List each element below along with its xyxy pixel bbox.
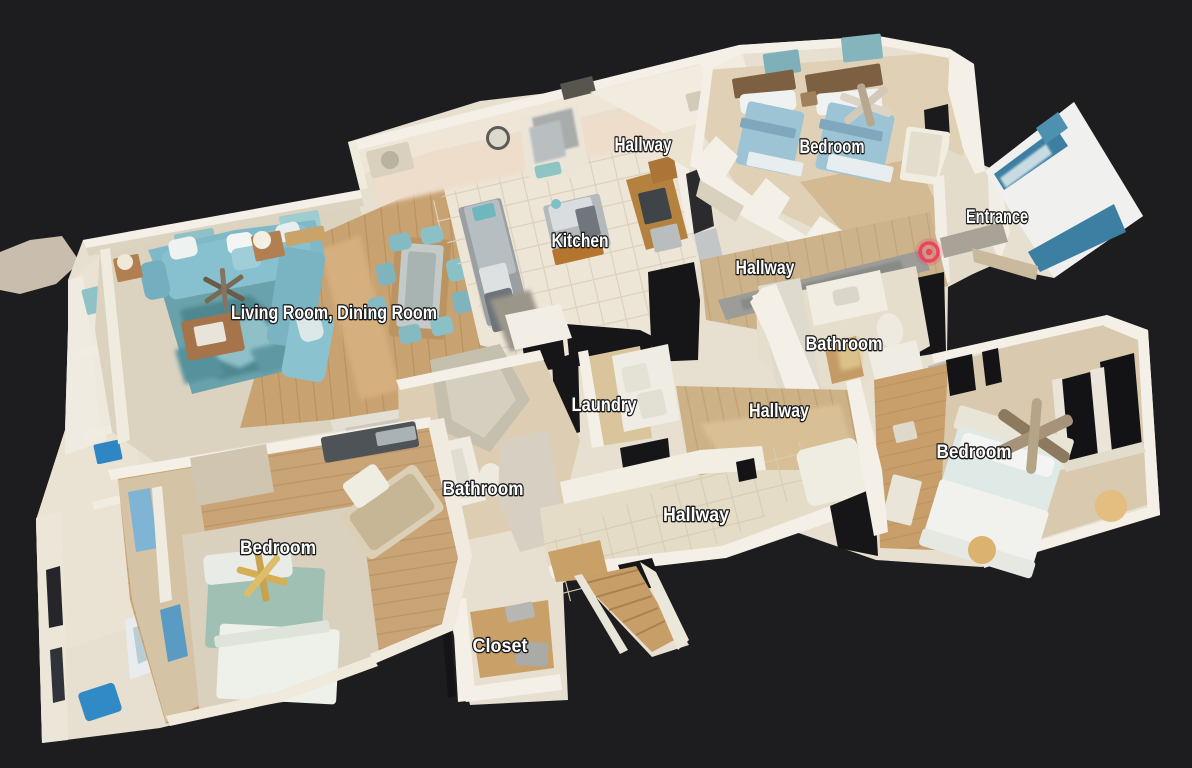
svg-text:Hallway: Hallway — [749, 401, 809, 422]
svg-text:Kitchen: Kitchen — [552, 231, 609, 252]
svg-text:Hallway: Hallway — [736, 258, 795, 279]
svg-text:Bathroom: Bathroom — [806, 334, 883, 355]
svg-text:Closet: Closet — [473, 636, 529, 657]
svg-text:Entrance: Entrance — [966, 207, 1028, 228]
svg-text:Laundry: Laundry — [572, 395, 637, 416]
svg-text:Bathroom: Bathroom — [443, 479, 524, 500]
svg-text:Bedroom: Bedroom — [240, 538, 316, 559]
svg-text:Hallway: Hallway — [615, 135, 672, 156]
svg-text:Bedroom: Bedroom — [937, 442, 1012, 463]
svg-text:Hallway: Hallway — [663, 505, 729, 526]
svg-text:Bedroom: Bedroom — [800, 137, 865, 158]
svg-text:Living Room, Dining Room: Living Room, Dining Room — [231, 303, 437, 324]
